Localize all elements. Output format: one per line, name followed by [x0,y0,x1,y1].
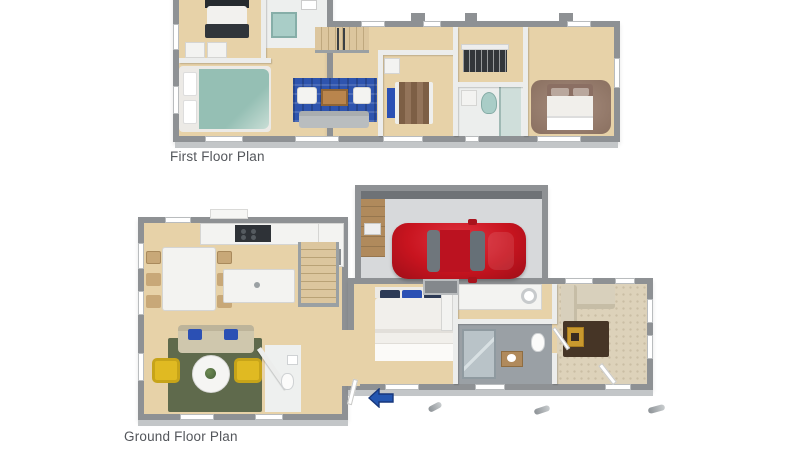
pillow [183,72,197,96]
window [465,136,479,142]
bed-blanket [547,116,593,130]
washing-machine [521,288,537,304]
wardrobe [185,42,205,58]
duvet-fold [375,343,453,361]
window [567,21,591,27]
armchair-yellow [152,358,180,383]
sofa-chaise [561,285,577,325]
armchair [353,87,371,104]
wall-base [138,420,348,426]
window [180,414,214,420]
window [138,353,144,381]
window [565,278,593,284]
pillow [183,100,197,124]
first-floor-plan [165,0,627,152]
sofa [299,111,369,128]
garage-internal-step [423,279,459,295]
coffee-table [321,89,348,106]
garage-door [361,191,542,199]
toilet [481,92,497,114]
car-hood-highlight [488,232,514,270]
pillow [224,329,238,340]
toilet [531,333,545,352]
window [423,21,441,27]
window [361,21,385,27]
wall-pier [465,13,477,22]
inner-wall [261,0,266,58]
window [647,335,653,359]
shower [462,329,496,379]
toilet [281,373,294,390]
car-roof [440,230,470,272]
car-rear-window [427,230,440,272]
inner-wall [552,353,557,384]
sink-faucet [254,282,260,288]
stair-railing [298,303,339,307]
window [138,291,144,315]
entry-arrow-icon [368,388,394,408]
dining-chairs-left [146,251,161,264]
bed-throw [205,24,249,38]
doorway [340,330,360,386]
window [383,136,423,142]
bed-brown [395,82,433,124]
dining-chairs-right [217,251,232,264]
window [605,384,631,390]
window [615,278,635,284]
window [614,58,620,88]
armchair-yellow [234,358,262,383]
ground-floor-plan-label: Ground Floor Plan [124,429,238,444]
closet-hanging-rail [463,50,507,72]
wall-base [175,142,618,148]
window-box [210,209,248,219]
stair-railing [337,28,339,50]
plant [205,368,216,379]
burner [241,229,246,234]
dining-table [162,247,216,311]
storage-box [364,223,381,235]
inner-wall [458,82,523,87]
pillow [188,329,202,340]
shower [271,12,297,38]
ground-floor-plan [135,183,665,423]
staircase [298,242,339,303]
armchair [297,87,317,104]
vanity [301,0,317,10]
window [255,414,283,420]
inner-wall [378,50,383,136]
inner-wall [523,27,528,136]
wardrobe [207,42,227,58]
first-floor-plan-label: First Floor Plan [170,149,265,164]
wardrobe [384,58,400,74]
car-mirror [468,277,477,283]
window [165,217,191,223]
basin [287,355,298,365]
window [537,136,581,142]
inner-wall [383,50,453,55]
floor-plans-canvas: First Floor Plan [0,0,800,457]
bed-duvet-teal [199,69,269,129]
staircase [315,27,369,53]
window [173,24,179,50]
pillow [573,88,589,96]
car-mirror [468,219,477,225]
inner-wall [453,284,458,384]
window [295,136,339,142]
window [205,136,243,142]
shower [499,87,521,136]
basin [507,354,516,362]
ottoman-pattern [571,333,579,341]
pillow [551,88,569,96]
inner-wall [552,284,557,324]
window [647,299,653,323]
vanity [461,90,477,106]
car-windshield [470,231,485,271]
inner-wall [458,319,552,324]
stair-railing [343,28,345,50]
window [385,384,419,390]
window [173,86,179,114]
inner-wall [179,58,271,63]
window [138,243,144,269]
cooktop [235,225,271,242]
window [475,384,505,390]
bed-runner [387,88,395,118]
